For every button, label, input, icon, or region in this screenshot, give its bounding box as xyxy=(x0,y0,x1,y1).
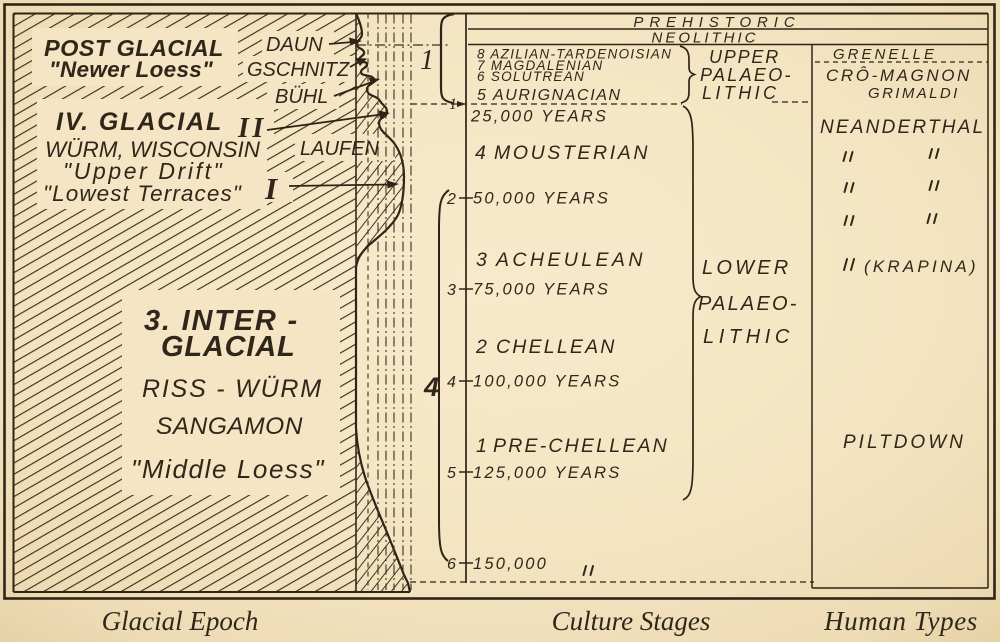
svg-text:75,000 YEARS: 75,000 YEARS xyxy=(473,281,610,299)
svg-text:GLACIAL: GLACIAL xyxy=(161,331,295,363)
svg-text:1: 1 xyxy=(476,435,487,457)
svg-text:GRENELLE: GRENELLE xyxy=(833,46,937,63)
svg-text:RISS - WÜRM: RISS - WÜRM xyxy=(142,375,323,403)
svg-text:"Middle Loess": "Middle Loess" xyxy=(131,454,325,484)
svg-text:3: 3 xyxy=(476,249,487,271)
svg-text:PREHISTORIC: PREHISTORIC xyxy=(633,14,800,31)
svg-text:4: 4 xyxy=(475,142,486,164)
svg-text:DAUN: DAUN xyxy=(266,34,323,56)
svg-text:(KRAPINA): (KRAPINA) xyxy=(864,257,979,276)
svg-text:I: I xyxy=(264,171,278,206)
svg-text:PALAEO-: PALAEO- xyxy=(700,65,793,85)
svg-text:ACHEULEAN: ACHEULEAN xyxy=(495,249,646,271)
svg-text:LITHIC: LITHIC xyxy=(703,326,794,348)
svg-text:PRE-CHELLEAN: PRE-CHELLEAN xyxy=(493,435,669,457)
svg-text:CRÔ-MAGNON: CRÔ-MAGNON xyxy=(826,66,972,85)
svg-text:Glacial Epoch: Glacial Epoch xyxy=(102,606,259,636)
svg-text:25,000 YEARS: 25,000 YEARS xyxy=(470,108,608,126)
svg-text:"Lowest Terraces": "Lowest Terraces" xyxy=(43,181,242,206)
svg-text:4: 4 xyxy=(423,372,439,402)
svg-text:CHELLEAN: CHELLEAN xyxy=(496,336,617,358)
svg-text:UPPER: UPPER xyxy=(709,47,780,67)
svg-text:GRIMALDI: GRIMALDI xyxy=(868,85,960,102)
svg-text:MOUSTERIAN: MOUSTERIAN xyxy=(494,142,650,164)
svg-text:BÜHL: BÜHL xyxy=(275,86,328,108)
svg-text:1: 1 xyxy=(449,96,457,113)
svg-text:PALAEO-: PALAEO- xyxy=(698,293,799,315)
svg-text:PILTDOWN: PILTDOWN xyxy=(843,432,966,453)
svg-text:II: II xyxy=(237,113,267,144)
svg-text:SANGAMON: SANGAMON xyxy=(156,413,303,440)
svg-text:3: 3 xyxy=(447,282,456,299)
svg-text:6 SOLUTREAN: 6 SOLUTREAN xyxy=(477,69,585,84)
svg-text:5: 5 xyxy=(447,465,456,482)
svg-text:6: 6 xyxy=(447,556,456,573)
svg-text:1: 1 xyxy=(420,45,434,76)
svg-text:LOWER: LOWER xyxy=(702,257,791,279)
svg-text:50,000 YEARS: 50,000 YEARS xyxy=(473,190,610,208)
svg-text:"Newer Loess": "Newer Loess" xyxy=(49,57,213,82)
svg-text:NEOLITHIC: NEOLITHIC xyxy=(651,30,758,47)
svg-text:LITHIC: LITHIC xyxy=(702,83,779,103)
svg-text:150,000: 150,000 xyxy=(473,555,548,573)
svg-text:2: 2 xyxy=(475,336,487,358)
svg-text:4: 4 xyxy=(447,374,456,391)
svg-text:Human Types: Human Types xyxy=(823,606,978,636)
svg-text:5 AURIGNACIAN: 5 AURIGNACIAN xyxy=(477,87,622,104)
svg-text:LAUFEN: LAUFEN xyxy=(300,138,379,160)
svg-text:IV. GLACIAL: IV. GLACIAL xyxy=(56,108,223,136)
svg-text:2: 2 xyxy=(446,191,456,208)
svg-text:125,000 YEARS: 125,000 YEARS xyxy=(473,464,621,482)
svg-text:100,000 YEARS: 100,000 YEARS xyxy=(473,373,621,391)
svg-text:Culture Stages: Culture Stages xyxy=(552,606,711,636)
svg-text:NEANDERTHAL: NEANDERTHAL xyxy=(820,117,985,138)
svg-text:GSCHNITZ: GSCHNITZ xyxy=(247,59,350,81)
